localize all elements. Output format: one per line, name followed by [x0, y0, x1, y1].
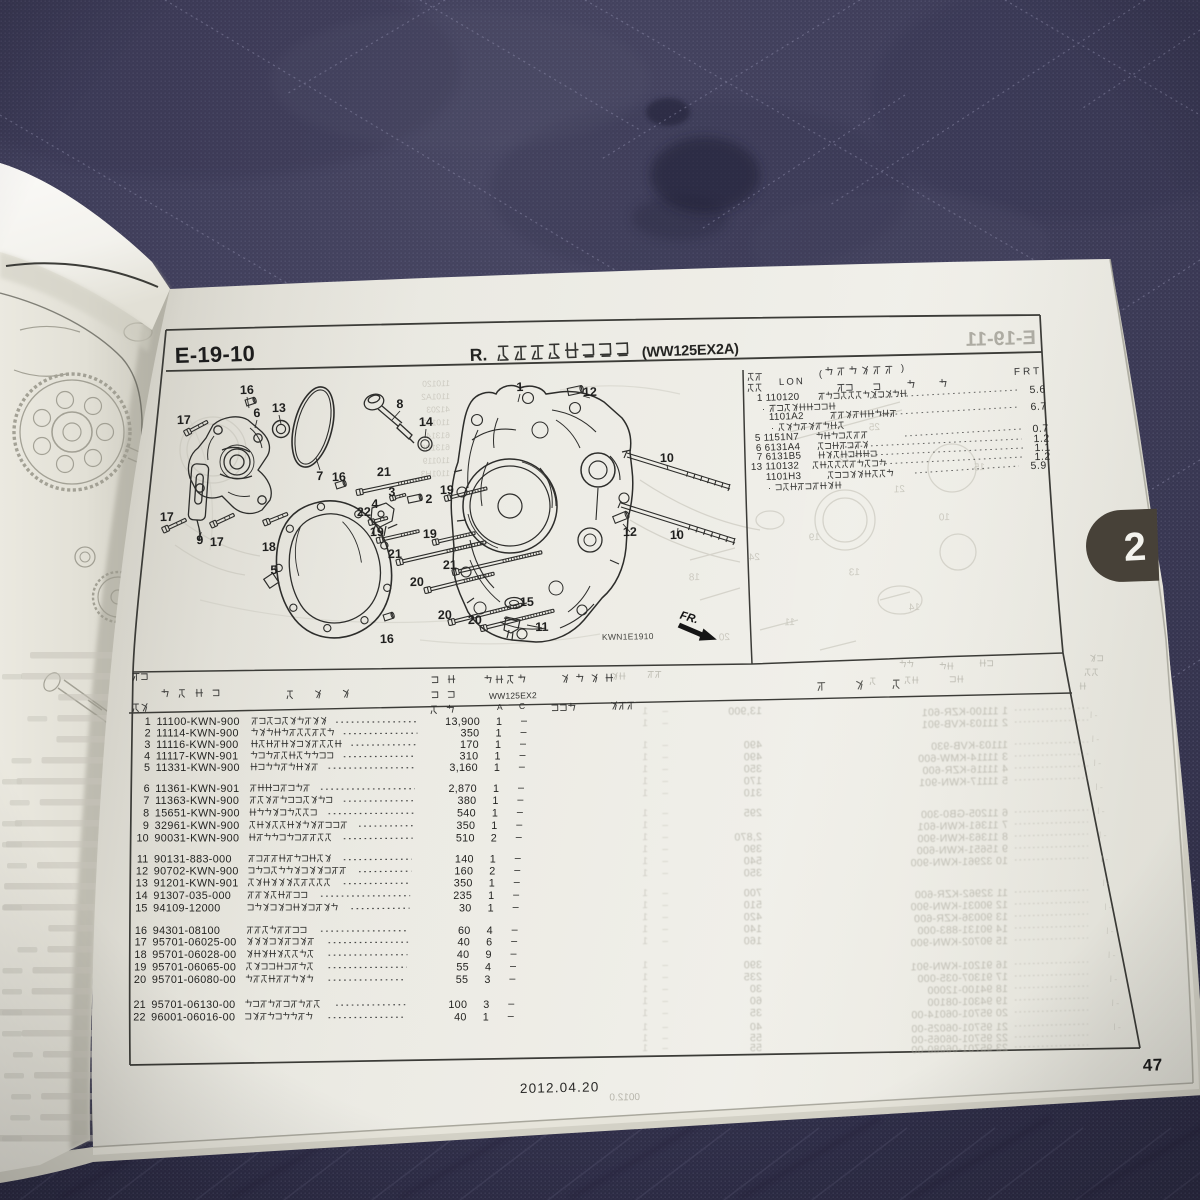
svg-text:–: – [662, 844, 668, 855]
svg-text:1: 1 [642, 808, 648, 819]
svg-text:19: 19 [808, 532, 820, 543]
svg-text:1: 1 [494, 762, 500, 774]
svg-text:–: – [662, 740, 668, 751]
svg-text:–: – [513, 902, 519, 914]
svg-text:22: 22 [838, 454, 850, 465]
svg-text:24: 24 [748, 552, 760, 563]
svg-text:90702-KWN-900: 90702-KWN-900 [154, 866, 239, 878]
svg-text:350: 350 [456, 820, 475, 832]
svg-text:490: 490 [743, 751, 762, 763]
svg-text:l -: l - [1110, 974, 1118, 984]
svg-text:–: – [516, 819, 522, 831]
svg-text:6: 6 [486, 937, 492, 949]
svg-text:55: 55 [456, 974, 469, 986]
svg-text:–: – [662, 924, 668, 935]
svg-text:95701-06130-00: 95701-06130-00 [151, 999, 235, 1011]
svg-text:–: – [512, 924, 518, 936]
svg-text:2,870: 2,870 [448, 783, 477, 795]
svg-text:17: 17 [177, 413, 191, 427]
svg-text:5 11117-KWN-901: 5 11117-KWN-901 [919, 775, 1008, 789]
svg-text:l -: l - [1103, 878, 1111, 888]
svg-text:–: – [520, 738, 526, 750]
svg-text:–: – [519, 761, 525, 773]
svg-text:1: 1 [489, 878, 495, 890]
svg-text:18: 18 [134, 949, 146, 961]
svg-text:90131-883-000: 90131-883-000 [154, 854, 232, 866]
svg-text:20: 20 [438, 608, 452, 622]
svg-text:–: – [521, 715, 527, 727]
svg-text:–: – [662, 808, 668, 819]
svg-text:E-19-10: E-19-10 [174, 341, 255, 368]
svg-text:510: 510 [456, 833, 475, 845]
svg-text:16: 16 [135, 925, 147, 937]
svg-text:–: – [662, 900, 668, 911]
svg-text:5: 5 [270, 563, 277, 577]
svg-text:–: – [520, 727, 526, 739]
svg-text:–: – [510, 961, 516, 973]
svg-text:1: 1 [642, 832, 648, 843]
svg-text:1: 1 [642, 868, 648, 879]
svg-text:l -: l - [1101, 854, 1109, 864]
svg-text:1: 1 [642, 1022, 648, 1033]
svg-text:–: – [517, 807, 523, 819]
svg-text:20: 20 [468, 613, 482, 627]
svg-text:–: – [662, 960, 668, 971]
svg-text:310: 310 [460, 751, 479, 763]
svg-text:1: 1 [490, 854, 496, 866]
svg-text:100: 100 [448, 999, 467, 1011]
svg-text:21: 21 [377, 465, 391, 479]
svg-text:60: 60 [458, 925, 471, 937]
svg-text:1: 1 [642, 1043, 648, 1054]
svg-text:10: 10 [136, 833, 148, 845]
svg-text:5: 5 [144, 762, 150, 774]
svg-text:9: 9 [143, 820, 149, 832]
svg-text:–: – [513, 889, 519, 901]
svg-text:1: 1 [494, 751, 500, 763]
svg-text:95701-06080-00: 95701-06080-00 [152, 974, 236, 986]
svg-text:–: – [509, 973, 515, 985]
svg-text:1: 1 [642, 888, 648, 899]
svg-text:–: – [662, 1022, 668, 1033]
svg-text:–: – [511, 936, 517, 948]
svg-text:160: 160 [743, 935, 762, 947]
svg-text:2: 2 [491, 833, 497, 845]
svg-text:20 95701-06014-00: 20 95701-06014-00 [911, 1007, 1008, 1021]
svg-text:140: 140 [743, 923, 762, 935]
svg-text:90031-KWN-900: 90031-KWN-900 [154, 833, 239, 845]
svg-text:11363-KWN-900: 11363-KWN-900 [155, 795, 239, 807]
svg-text:–: – [662, 1008, 668, 1019]
svg-text:91201-KWN-901: 91201-KWN-901 [154, 878, 239, 890]
svg-text:95701-06065-00: 95701-06065-00 [152, 962, 236, 974]
svg-text:40: 40 [454, 1012, 467, 1024]
svg-text:1: 1 [642, 996, 648, 1007]
svg-text:14: 14 [135, 890, 147, 902]
svg-text:4: 4 [485, 962, 491, 974]
svg-text:22: 22 [357, 505, 371, 519]
svg-text:–: – [519, 750, 525, 762]
svg-text:1: 1 [642, 900, 648, 911]
svg-text:11100-KWN-900: 11100-KWN-900 [157, 716, 240, 728]
svg-text:30: 30 [459, 903, 472, 915]
svg-text:60: 60 [750, 995, 763, 1007]
svg-text:3: 3 [484, 974, 490, 986]
svg-text:–: – [517, 794, 523, 806]
svg-text:40: 40 [457, 949, 470, 961]
svg-text:700: 700 [743, 887, 762, 899]
svg-text:10 32961-KWN-900: 10 32961-KWN-900 [910, 855, 1008, 869]
svg-text:5.6: 5.6 [1029, 384, 1046, 397]
svg-text:17: 17 [210, 535, 224, 549]
svg-text:380: 380 [458, 795, 477, 807]
svg-text:2,870: 2,870 [734, 831, 762, 844]
svg-text:l -: l - [1104, 902, 1112, 912]
svg-text:21: 21 [443, 558, 457, 572]
svg-text:11114-KWN-900: 11114-KWN-900 [156, 728, 239, 740]
svg-text:140: 140 [455, 854, 474, 866]
svg-text:235: 235 [453, 890, 472, 902]
svg-text:l -: l - [1095, 782, 1103, 792]
svg-text:13,900: 13,900 [728, 705, 762, 718]
svg-text:–: – [515, 853, 521, 865]
svg-text:–: – [662, 868, 668, 879]
svg-text:17: 17 [160, 510, 174, 524]
svg-text:–: – [662, 820, 668, 831]
svg-text:540: 540 [743, 855, 762, 867]
svg-text:0012.0: 0012.0 [609, 1092, 640, 1104]
svg-text:l -: l - [1094, 758, 1102, 768]
svg-text:1: 1 [642, 764, 648, 775]
svg-text:20: 20 [134, 974, 146, 986]
svg-text:15: 15 [135, 903, 147, 915]
svg-text:–: – [514, 877, 520, 889]
svg-text:15 90702-KWN-900: 15 90702-KWN-900 [910, 935, 1008, 949]
svg-text:94109-12000: 94109-12000 [153, 903, 221, 915]
svg-text:1: 1 [493, 783, 499, 795]
svg-text:11116-KWN-900: 11116-KWN-900 [156, 739, 239, 751]
svg-text:13: 13 [272, 401, 286, 415]
svg-text:170: 170 [460, 739, 479, 751]
svg-text:l -: l - [1112, 998, 1120, 1008]
svg-text:10: 10 [660, 451, 674, 465]
svg-text:–: – [511, 948, 517, 960]
svg-text:1: 1 [642, 788, 648, 799]
svg-text:11: 11 [784, 617, 795, 628]
svg-text:19: 19 [370, 525, 384, 539]
svg-text:1: 1 [642, 924, 648, 935]
svg-text:350: 350 [743, 867, 762, 879]
svg-text:1: 1 [491, 820, 497, 832]
svg-text:–: – [662, 996, 668, 1007]
svg-text:25: 25 [868, 422, 880, 433]
svg-text:1: 1 [488, 903, 494, 915]
svg-text:LON: LON [779, 376, 806, 388]
svg-text:20: 20 [718, 632, 730, 643]
svg-text:4: 4 [144, 751, 150, 763]
svg-text:2012.04.20: 2012.04.20 [520, 1079, 600, 1096]
svg-text:l -: l - [1113, 1022, 1121, 1032]
svg-text:R.: R. [469, 344, 487, 365]
svg-text:21: 21 [388, 547, 402, 561]
svg-text:1: 1 [495, 739, 501, 751]
svg-text:–: – [662, 788, 668, 799]
svg-text:1: 1 [488, 890, 494, 902]
svg-text:7: 7 [316, 469, 323, 483]
svg-text:15: 15 [520, 595, 534, 609]
svg-text:95701-06025-00: 95701-06025-00 [153, 937, 237, 949]
svg-text:–: – [662, 1043, 668, 1054]
svg-text:8: 8 [143, 808, 149, 820]
svg-text:1: 1 [642, 844, 648, 855]
svg-text:11: 11 [137, 854, 149, 866]
svg-text:1: 1 [642, 776, 648, 787]
svg-text:16: 16 [332, 470, 346, 484]
svg-text:1: 1 [642, 912, 648, 923]
svg-text:160: 160 [454, 866, 473, 878]
svg-text:390: 390 [743, 843, 762, 855]
svg-text:–: – [518, 782, 524, 794]
svg-text:13: 13 [848, 567, 860, 578]
svg-text:13: 13 [136, 878, 148, 890]
svg-text:A: A [497, 702, 503, 712]
svg-text:10: 10 [938, 512, 950, 523]
svg-text:22: 22 [133, 1012, 145, 1024]
svg-text:15651-KWN-900: 15651-KWN-900 [155, 808, 240, 820]
svg-text:21: 21 [893, 484, 905, 495]
svg-text:6.7: 6.7 [1030, 401, 1047, 414]
svg-text:1: 1 [642, 820, 648, 831]
svg-text:11331-KWN-900: 11331-KWN-900 [156, 762, 240, 774]
svg-text:2: 2 [425, 492, 432, 506]
svg-text:1: 1 [642, 936, 648, 947]
svg-text:l -: l - [1099, 830, 1107, 840]
svg-text:310: 310 [743, 787, 762, 799]
svg-text:5.9: 5.9 [1030, 460, 1047, 473]
svg-text:390: 390 [743, 959, 762, 971]
svg-text:295: 295 [743, 807, 762, 819]
svg-text:420: 420 [743, 911, 762, 923]
svg-text:l -: l - [1090, 710, 1098, 720]
svg-text:15: 15 [973, 462, 985, 473]
svg-text:14: 14 [419, 415, 433, 429]
svg-text:110119: 110119 [422, 455, 450, 466]
svg-text:1: 1 [516, 380, 523, 394]
svg-text:1: 1 [492, 795, 498, 807]
svg-text:1: 1 [495, 728, 501, 740]
svg-text:95701-06028-00: 95701-06028-00 [152, 949, 236, 961]
svg-text:FRT: FRT [1014, 366, 1043, 378]
svg-text:1: 1 [145, 716, 151, 728]
svg-text:19: 19 [440, 483, 454, 497]
svg-text:–: – [662, 776, 668, 787]
svg-text:1: 1 [642, 960, 648, 971]
svg-text:1: 1 [642, 740, 648, 751]
svg-text:l -: l - [1097, 806, 1105, 816]
svg-text:350: 350 [454, 878, 473, 890]
svg-text:19: 19 [423, 527, 437, 541]
svg-text:510: 510 [743, 899, 762, 911]
svg-text:1101A2: 1101A2 [421, 391, 450, 402]
svg-text:11361-KWN-901: 11361-KWN-901 [155, 783, 239, 795]
svg-text:6: 6 [144, 783, 150, 795]
svg-text:96001-06016-00: 96001-06016-00 [151, 1012, 235, 1024]
svg-text:18: 18 [262, 540, 276, 554]
svg-text:94301-08100: 94301-08100 [153, 925, 221, 937]
svg-text:1: 1 [642, 718, 648, 729]
svg-text:–: – [662, 912, 668, 923]
svg-text:3,160: 3,160 [449, 762, 478, 774]
svg-text:–: – [662, 718, 668, 729]
svg-text:30: 30 [750, 983, 763, 995]
svg-text:19: 19 [134, 962, 146, 974]
svg-text:8: 8 [396, 397, 403, 411]
svg-text:2: 2 [489, 866, 495, 878]
svg-text:1: 1 [642, 1008, 648, 1019]
svg-text:91307-035-000: 91307-035-000 [153, 890, 231, 902]
svg-text:–: – [662, 856, 668, 867]
svg-text:350: 350 [461, 728, 480, 740]
svg-text:–: – [662, 752, 668, 763]
svg-text:12: 12 [583, 385, 597, 399]
svg-text:1: 1 [642, 984, 648, 995]
svg-text:41203: 41203 [426, 404, 450, 415]
svg-text:17: 17 [135, 937, 147, 949]
svg-text:–: – [508, 1011, 514, 1023]
svg-text:l -: l - [1092, 734, 1100, 744]
svg-text:1: 1 [492, 808, 498, 820]
svg-text:14: 14 [908, 602, 920, 613]
svg-text:1: 1 [496, 716, 502, 728]
svg-text:490: 490 [743, 739, 762, 751]
svg-text:–: – [662, 888, 668, 899]
svg-text:1: 1 [642, 706, 648, 717]
svg-text:–: – [514, 865, 520, 877]
svg-text:235: 235 [743, 971, 762, 983]
svg-text:6: 6 [253, 406, 260, 420]
svg-text:40: 40 [457, 937, 470, 949]
svg-text:l -: l - [1108, 950, 1116, 960]
svg-text:16: 16 [380, 632, 394, 646]
svg-text:·: · [762, 404, 765, 414]
svg-text:·: · [768, 483, 771, 493]
svg-text:1: 1 [642, 856, 648, 867]
svg-text:170: 170 [743, 775, 762, 787]
svg-text:1: 1 [642, 752, 648, 763]
svg-text:55: 55 [456, 962, 469, 974]
svg-text:3: 3 [483, 999, 489, 1011]
svg-text:1101H3: 1101H3 [766, 471, 802, 483]
svg-text:13,900: 13,900 [445, 716, 480, 728]
svg-text:20: 20 [410, 575, 424, 589]
svg-text:2: 2 [1123, 525, 1148, 570]
svg-text:1: 1 [483, 1012, 489, 1024]
svg-text:540: 540 [457, 808, 476, 820]
svg-text:–: – [662, 764, 668, 775]
svg-text:E-19-11: E-19-11 [965, 327, 1036, 351]
svg-text:–: – [662, 972, 668, 983]
svg-text:7: 7 [143, 795, 149, 807]
svg-text:–: – [516, 832, 522, 844]
svg-text:2: 2 [145, 728, 151, 740]
svg-text:–: – [662, 706, 668, 717]
svg-text:1 110120: 1 110120 [757, 392, 800, 404]
svg-text:): ) [901, 363, 905, 374]
svg-text:3: 3 [388, 485, 395, 499]
svg-text:1101A2: 1101A2 [769, 411, 804, 423]
svg-text:WW125EX2: WW125EX2 [489, 690, 537, 701]
svg-text:110120: 110120 [422, 378, 450, 389]
svg-text:2 11103-KVB-901: 2 11103-KVB-901 [921, 717, 1008, 731]
svg-text:23 95701-06080-00: 23 95701-06080-00 [911, 1042, 1008, 1056]
svg-text:–: – [662, 832, 668, 843]
svg-text:35: 35 [750, 1007, 763, 1019]
svg-text:11117-KWN-901: 11117-KWN-901 [156, 751, 239, 763]
svg-text:350: 350 [743, 763, 762, 775]
svg-text:9: 9 [486, 949, 492, 961]
svg-text:32961-KWN-900: 32961-KWN-900 [155, 820, 240, 832]
svg-text:1: 1 [642, 972, 648, 983]
svg-text:21: 21 [133, 999, 145, 1011]
svg-text:18: 18 [688, 572, 700, 583]
svg-text:KWN1E1910: KWN1E1910 [602, 631, 654, 642]
svg-text:l -: l - [1106, 926, 1114, 936]
svg-text:4: 4 [371, 497, 378, 511]
svg-text:3: 3 [144, 739, 150, 751]
svg-text:–: – [662, 984, 668, 995]
svg-text:–: – [508, 998, 514, 1010]
svg-text:–: – [662, 936, 668, 947]
svg-text:C: C [519, 701, 525, 711]
svg-text:16: 16 [240, 383, 254, 397]
svg-text:12: 12 [136, 866, 148, 878]
svg-text:4: 4 [487, 925, 493, 937]
svg-text:47: 47 [1142, 1055, 1163, 1075]
svg-text:55: 55 [750, 1042, 763, 1054]
